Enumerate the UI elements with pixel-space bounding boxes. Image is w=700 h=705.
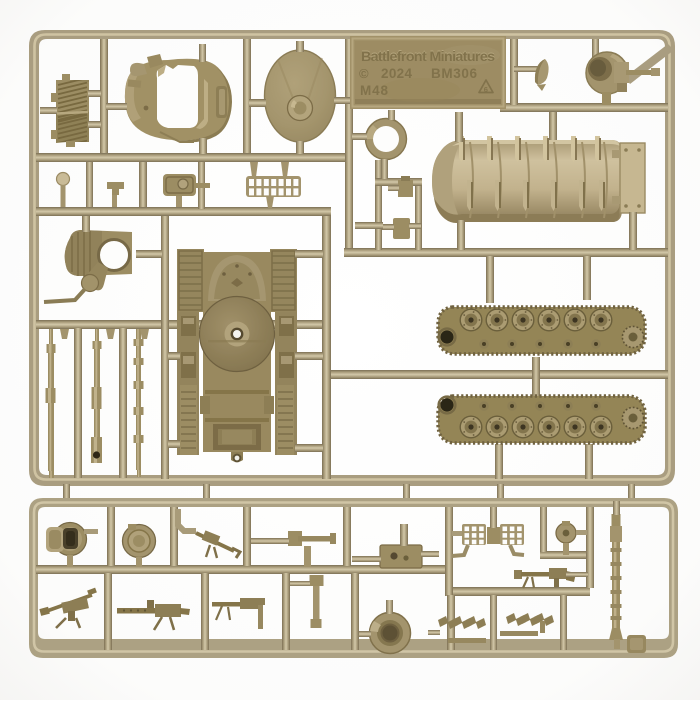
svg-text:BM306: BM306 [431,66,477,81]
svg-text:©: © [359,66,369,81]
svg-text:2024: 2024 [381,66,412,81]
svg-text:6: 6 [484,85,488,94]
svg-text:Battlefront Miniatures: Battlefront Miniatures [361,49,495,65]
svg-text:M48: M48 [360,83,388,98]
